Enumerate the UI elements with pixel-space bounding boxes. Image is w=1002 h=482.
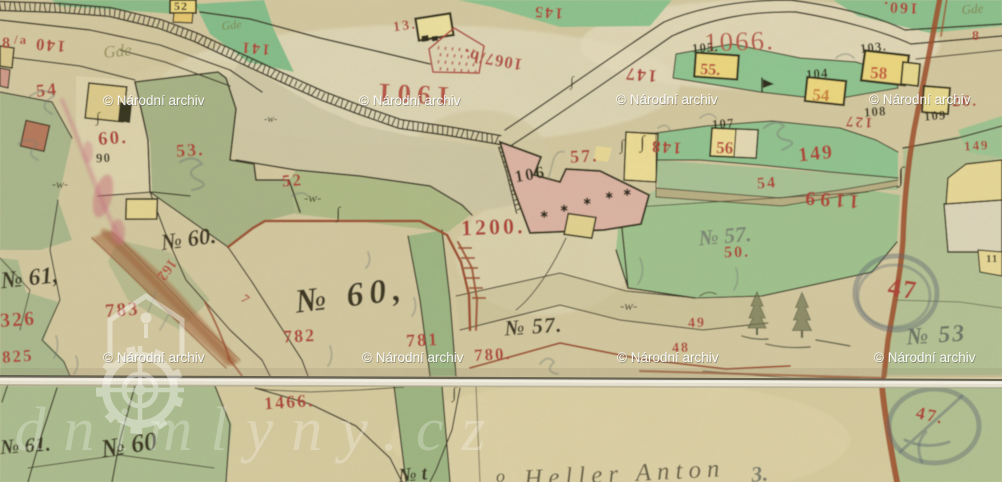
svg-text:© Národní archiv: © Národní archiv: [874, 350, 976, 365]
svg-text:© Národní archiv: © Národní archiv: [359, 93, 461, 108]
svg-text:© Národní archiv: © Národní archiv: [617, 350, 719, 365]
svg-text:© Národní archiv: © Národní archiv: [362, 350, 464, 365]
svg-text:© Národní archiv: © Národní archiv: [103, 350, 205, 365]
svg-text:© Národní archiv: © Národní archiv: [103, 93, 205, 108]
svg-text:© Národní archiv: © Národní archiv: [869, 92, 971, 107]
svg-text:© Národní archiv: © Národní archiv: [616, 92, 718, 107]
svg-text:vodnimlyny.cz: vodnimlyny.cz: [0, 396, 504, 464]
